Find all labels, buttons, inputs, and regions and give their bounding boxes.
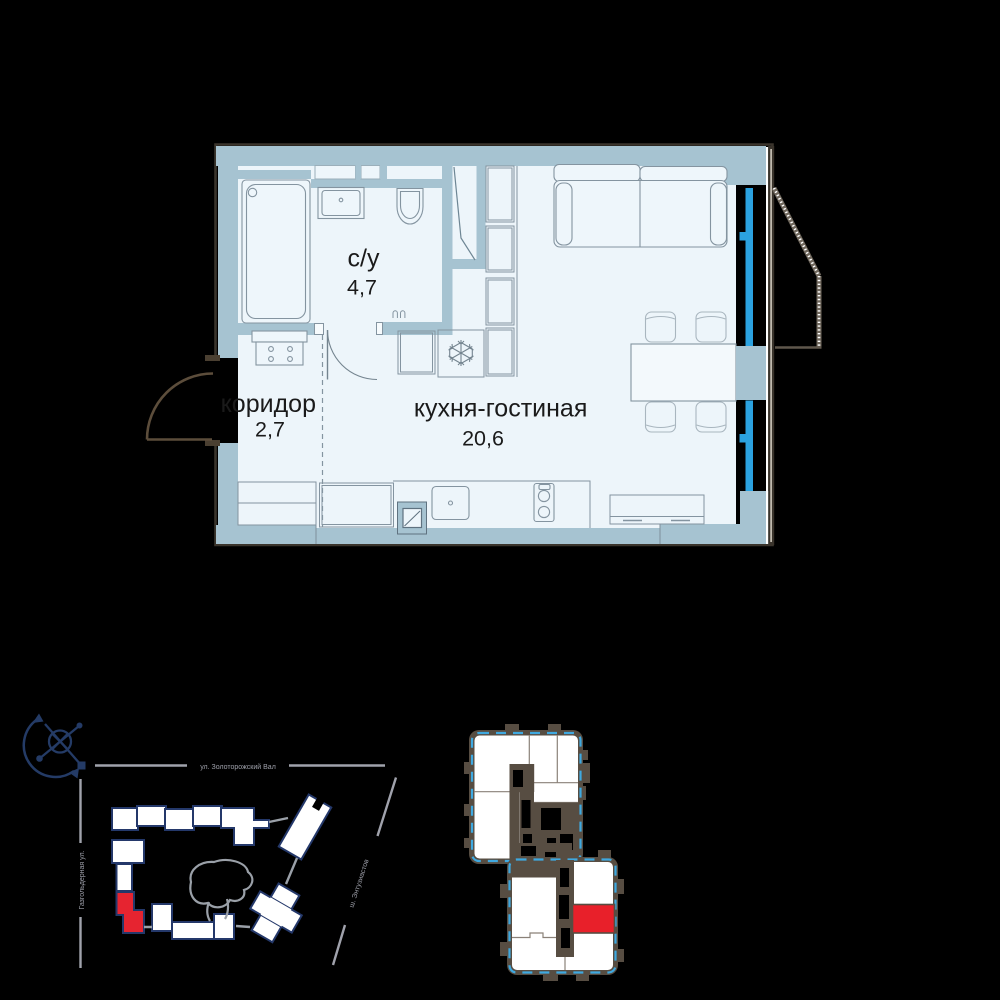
svg-text:кухня-гостиная: кухня-гостиная [414, 394, 588, 422]
svg-text:20,6: 20,6 [462, 427, 504, 451]
svg-text:с/у: с/у [348, 245, 380, 273]
svg-text:4,7: 4,7 [347, 276, 377, 300]
svg-text:Газгольдерная ул.: Газгольдерная ул. [79, 850, 86, 909]
svg-text:2,7: 2,7 [255, 418, 285, 442]
svg-text:ул. Золоторожский Вал: ул. Золоторожский Вал [200, 763, 276, 771]
svg-text:коридор: коридор [221, 390, 316, 418]
